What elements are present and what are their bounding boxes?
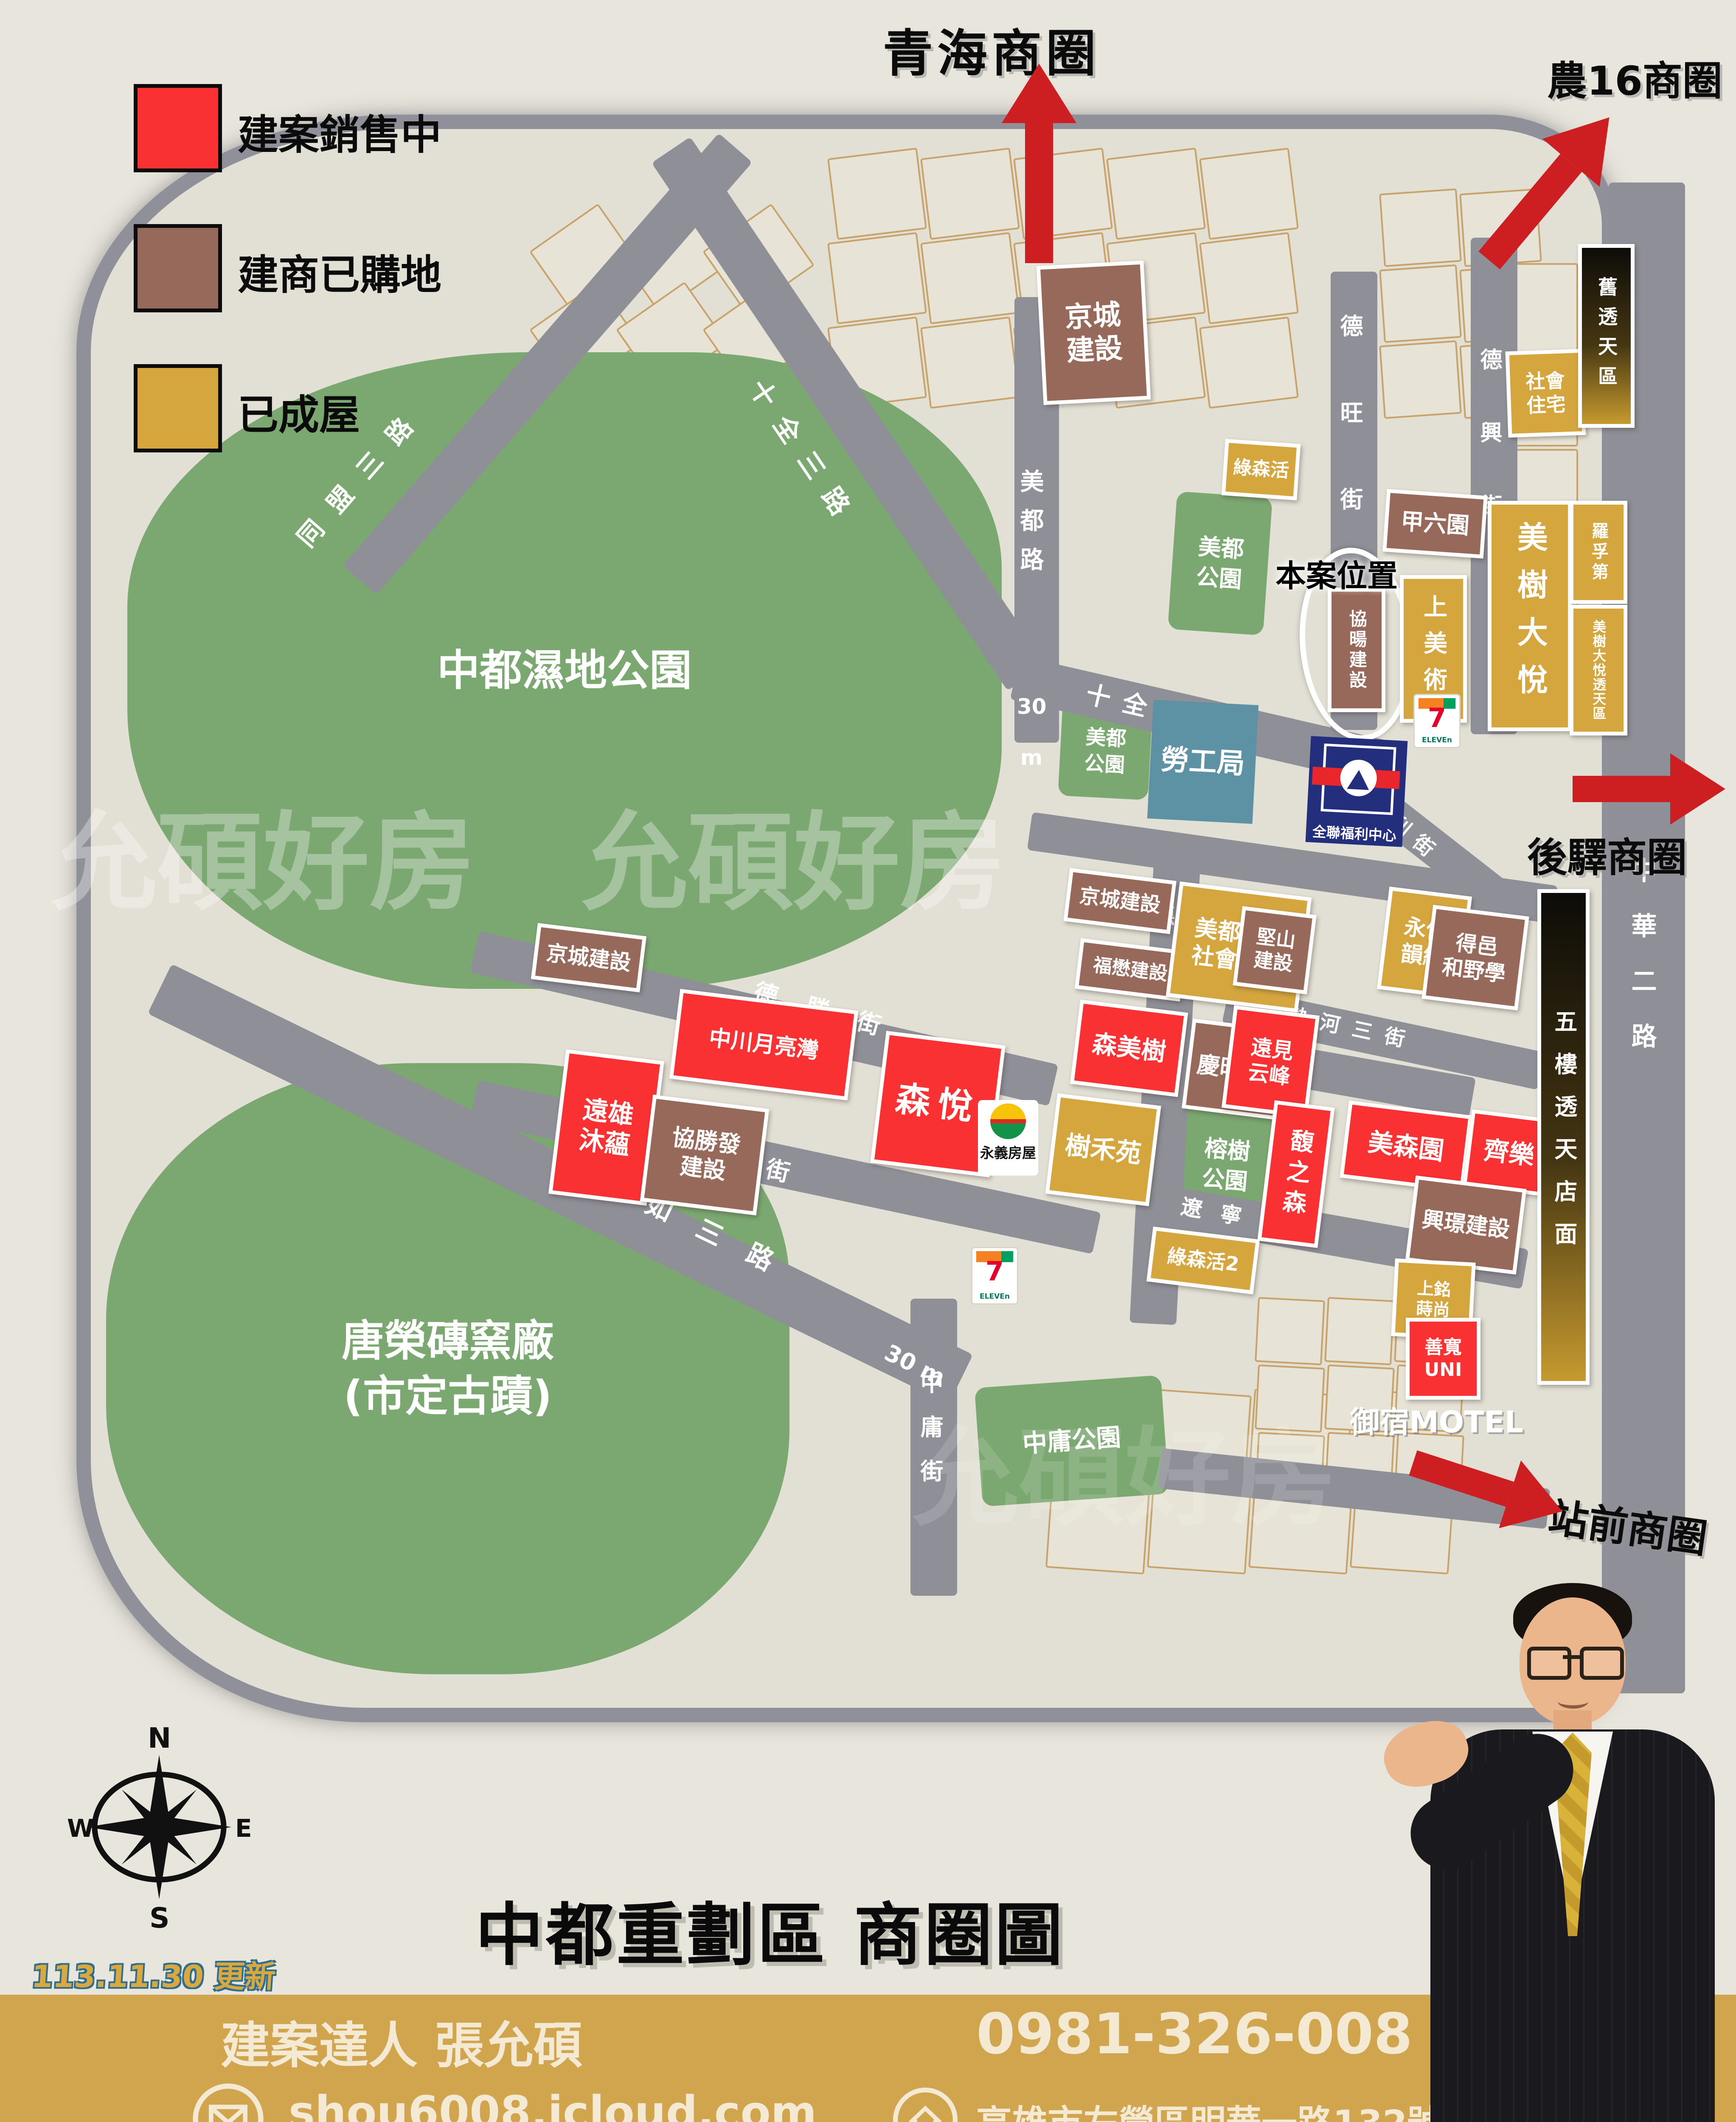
meidu-rd-30-label: 30 xyxy=(1017,696,1047,717)
meishu-dayue: 美樹大悅 xyxy=(1488,501,1572,731)
jianshan-jianshe-label: 建設 xyxy=(1253,948,1294,976)
luofu-di: 羅孚第 xyxy=(1570,501,1627,604)
parcel xyxy=(827,232,927,325)
yuanjian-yunfeng-label: 云峰 xyxy=(1247,1059,1292,1089)
parcel xyxy=(1379,188,1462,267)
page-title: 中都重劃區 商圈圖 xyxy=(475,1880,1065,1979)
glasses-bridge xyxy=(1563,1655,1581,1659)
parcel xyxy=(827,148,927,240)
compass-rose-icon: N E S W xyxy=(64,1719,259,1933)
jingcheng-jianshe-north-label: 建設 xyxy=(1066,331,1124,368)
parcel xyxy=(1255,1364,1325,1433)
qile-label: 齊樂 xyxy=(1482,1134,1536,1171)
jianshan-jianshe: 堅山建設 xyxy=(1233,906,1317,994)
meidu-park-south-label: 公園 xyxy=(1084,750,1126,778)
sen-meishu-label: 森美樹 xyxy=(1090,1029,1167,1067)
parcel xyxy=(1379,340,1462,419)
laogong-ju-label: 勞工局 xyxy=(1160,743,1246,780)
yuanjian-yunfeng: 遠見云峰 xyxy=(1222,1005,1320,1118)
shuheyuan-label: 樹禾苑 xyxy=(1063,1130,1143,1169)
shankuan-uni-label: UNI xyxy=(1424,1359,1462,1381)
meidu-park-south-label: 美都 xyxy=(1085,724,1127,752)
shuheyuan: 樹禾苑 xyxy=(1045,1093,1161,1206)
shankuan-uni-label: 善寬 xyxy=(1424,1336,1462,1359)
legend-swatch-owned xyxy=(134,224,222,312)
district-nong16: 農16商圈 xyxy=(1547,49,1722,107)
zhongyong-st-label-label: 中庸街 xyxy=(918,1371,941,1503)
laogong-ju: 勞工局 xyxy=(1147,700,1258,824)
shehui-zhuzhai-label: 住宅 xyxy=(1526,393,1566,417)
xieyang-jianshe: 協暘建設 xyxy=(1328,588,1385,712)
arrow-north-qinghai xyxy=(1002,64,1076,263)
seven-eleven-north: 7ELEVEn xyxy=(1413,694,1461,748)
zhonghua-2nd-rd-label: 中華二路 xyxy=(1629,857,1655,1078)
sen-meishu: 森美樹 xyxy=(1070,999,1188,1097)
pxmart-store: 全聯福利中心 xyxy=(1306,736,1408,847)
dewang-st-label-n: 德旺街 xyxy=(1338,314,1361,574)
parcel xyxy=(1199,232,1299,325)
meishu-dayue-label: 美樹大悅 xyxy=(1511,521,1548,711)
deyi-heyexue: 得邑和野學 xyxy=(1421,905,1529,1010)
meisenyuan-label: 美森園 xyxy=(1366,1127,1446,1166)
senyue-label: 森悅 xyxy=(893,1078,983,1130)
email-icon xyxy=(191,2082,265,2122)
meishu-dayue-toutian-qu: 美樹大悅透天區 xyxy=(1570,605,1627,735)
zhongyong-park: 中庸公園 xyxy=(975,1375,1169,1507)
jingcheng-jianshe-north-label: 京城 xyxy=(1064,298,1121,334)
meidu-rd-m-label: m xyxy=(1020,747,1042,768)
jingcheng-jianshe-small-label: 京城建設 xyxy=(1078,884,1162,918)
parcel xyxy=(1255,1297,1325,1365)
compass-w: W xyxy=(67,1814,94,1843)
home-icon xyxy=(891,2086,959,2122)
xieshengfa-jianshe: 協勝發建設 xyxy=(640,1095,770,1215)
arrow-east-houyi xyxy=(1573,753,1725,825)
agent-smile xyxy=(1558,1694,1588,1709)
agent-address: 高雄市左營區明華一路132號 xyxy=(976,2095,1443,2122)
shankuan-uni: 善寬UNI xyxy=(1406,1318,1480,1400)
parcel xyxy=(1199,317,1299,409)
legend-swatch-built xyxy=(134,364,222,452)
jingcheng-jianshe-north: 京城建設 xyxy=(1037,261,1151,405)
compass-e: E xyxy=(235,1814,252,1843)
dewang-st-label-n-label: 德旺街 xyxy=(1338,314,1361,574)
legend-label-owned: 建商已購地 xyxy=(238,242,441,301)
fuzhisen-label: 馥之森 xyxy=(1276,1127,1316,1221)
meidu-park-north-label: 公園 xyxy=(1195,562,1243,595)
wulou-toutian-dianmian-label: 五樓透天店面 xyxy=(1550,1010,1577,1264)
agent-photo xyxy=(1413,1583,1736,2122)
pxmart-label: 全聯福利中心 xyxy=(1306,820,1403,845)
parcel xyxy=(1199,148,1299,240)
xingjing-jianshe-label: 興璟建設 xyxy=(1420,1207,1511,1243)
jialiu-yuan-label: 甲六園 xyxy=(1400,508,1470,540)
shangming-shishang-label: 上銘 xyxy=(1416,1278,1451,1300)
compass-n: N xyxy=(148,1722,171,1754)
meishu-dayue-toutian-qu-label: 美樹大悅透天區 xyxy=(1590,620,1607,721)
meidu-park-north-label: 美都 xyxy=(1197,532,1245,565)
district-houyi: 後驛商圈 xyxy=(1527,825,1687,883)
parcel xyxy=(1379,264,1462,343)
fumao-jianshe-label: 福懋建設 xyxy=(1092,954,1169,985)
lvsenhuo-2-label: 綠森活2 xyxy=(1166,1244,1240,1276)
meidu-rd-label: 美都路 xyxy=(1018,469,1042,586)
lvsenhuo: 綠森活 xyxy=(1222,439,1301,500)
xieshengfa-jianshe-label: 建設 xyxy=(679,1152,728,1185)
zhongdu-wetland-park-label: 中都濕地公園 xyxy=(437,643,692,698)
jialiu-yuan: 甲六園 xyxy=(1382,489,1488,559)
legend-swatch-sale xyxy=(134,84,222,172)
agent-title: 建案達人 張允碩 xyxy=(221,2006,582,2077)
zhongyong-park-label: 中庸公園 xyxy=(1022,1421,1122,1460)
glasses-icon xyxy=(1580,1647,1624,1680)
tangrong-brick-kiln-label: (市定古蹟) xyxy=(343,1369,552,1424)
tangrong-brick-kiln-label: 唐榮磚窯廠 xyxy=(342,1314,554,1369)
zhonghua-2nd-rd-label-label: 中華二路 xyxy=(1629,857,1655,1078)
flyer: 中都濕地公園唐榮磚窯廠(市定古蹟)美都公園美都公園榕樹公園中庸公園 同盟三路十全… xyxy=(0,0,1736,2122)
wulou-toutian-dianmian: 五樓透天店面 xyxy=(1537,889,1590,1385)
yongyi-realty: 永義房屋 xyxy=(978,1100,1038,1176)
compass-s: S xyxy=(149,1902,170,1931)
shehui-zhuzhai: 社會住宅 xyxy=(1506,349,1586,438)
shangming-shishang-label: 蒔尚 xyxy=(1416,1298,1450,1320)
yuanxiong-muyun-label: 沐蘊 xyxy=(577,1124,632,1161)
parcel xyxy=(920,317,1020,409)
deyi-heyexue-label: 和野學 xyxy=(1441,954,1507,987)
update-date: 113.11.30 更新 xyxy=(30,1951,277,1996)
glasses-icon xyxy=(1527,1647,1571,1680)
jiu-toutian-qu: 舊透天區 xyxy=(1578,244,1635,428)
jiu-toutian-qu-label: 舊透天區 xyxy=(1595,277,1618,396)
rongshu-park-label: 榕樹 xyxy=(1203,1134,1252,1167)
zhongchuan-yueliangwan-label: 中川月亮灣 xyxy=(708,1025,820,1065)
xieyang-jianshe-label: 協暘建設 xyxy=(1346,609,1367,691)
agent-phone: 0981-326-008 xyxy=(976,2001,1413,2067)
legend-label-built: 已成屋 xyxy=(238,382,360,441)
jingcheng-jianshe-mid-label: 京城建設 xyxy=(545,940,632,976)
shehui-zhuzhai-label: 社會 xyxy=(1525,369,1565,394)
meidu-rd-m: m xyxy=(1020,747,1042,768)
meidu-park-north: 美都公園 xyxy=(1168,491,1273,636)
parcel xyxy=(1106,148,1206,240)
shang-meishu-label: 上美術 xyxy=(1419,594,1447,704)
parcel xyxy=(1324,1297,1395,1365)
meisenyuan: 美森園 xyxy=(1340,1100,1472,1193)
project-location-label: 本案位置 xyxy=(1275,551,1398,595)
meidu-rd-30: 30 xyxy=(1017,696,1047,717)
luofu-di-label: 羅孚第 xyxy=(1588,522,1609,583)
rongshu-park-label: 公園 xyxy=(1201,1163,1249,1197)
lvsenhuo-label: 綠森活 xyxy=(1232,457,1289,483)
agent-email: shou6008.icloud.com xyxy=(289,2086,817,2122)
zhongyong-st-label: 中庸街 xyxy=(918,1371,941,1503)
meidu-rd-label-label: 美都路 xyxy=(1018,469,1042,586)
legend-label-sale: 建案銷售中 xyxy=(238,102,441,161)
seven-eleven-south: 7ELEVEn xyxy=(971,1247,1018,1305)
